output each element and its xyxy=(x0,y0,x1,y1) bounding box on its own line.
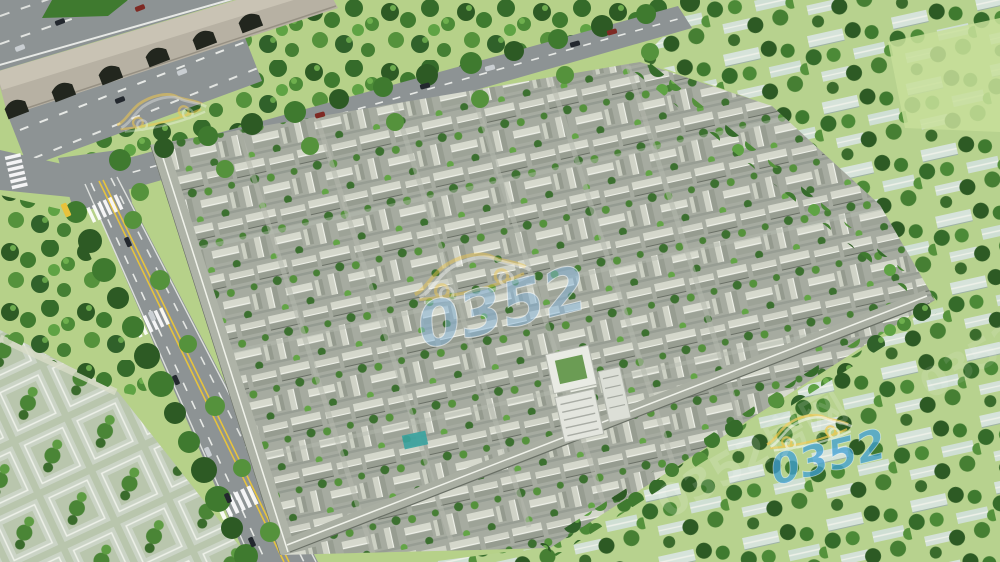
aerial-rendering: 0352 0352 0352房网 0352房网 xyxy=(0,0,1000,562)
scene-canvas: 0352 0352 0352房网 0352房网 xyxy=(0,0,1000,562)
